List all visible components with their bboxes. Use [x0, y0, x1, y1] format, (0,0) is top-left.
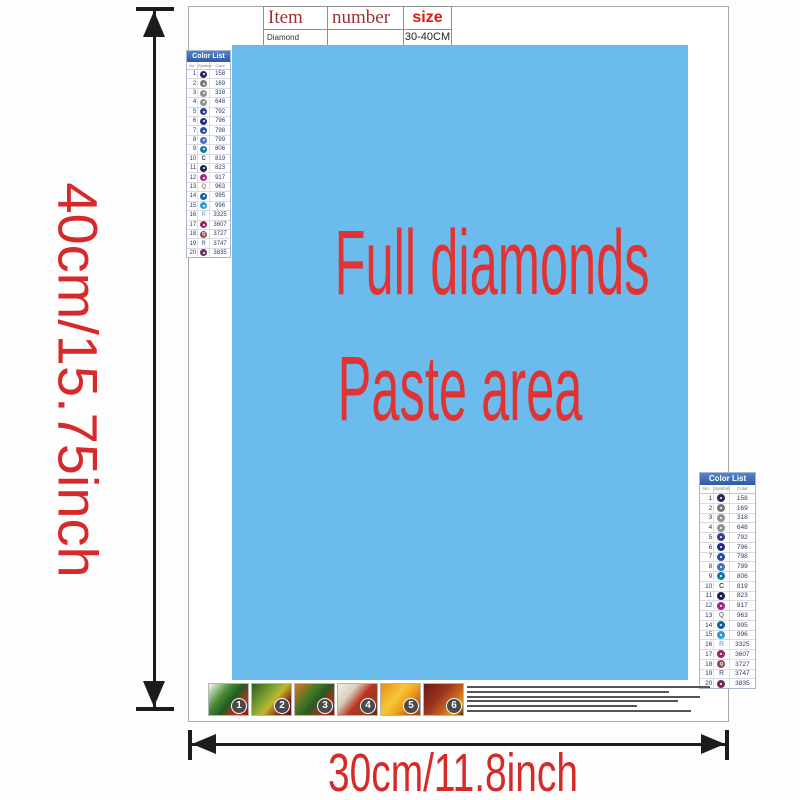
color-symbol-dot	[200, 99, 207, 106]
color-list-row: 14995	[700, 621, 755, 631]
color-list-row: 19R3747	[700, 670, 755, 680]
color-list-row: 12917	[187, 173, 230, 182]
color-symbol-speck	[203, 148, 205, 150]
color-symbol-cell	[198, 136, 210, 144]
color-symbol-dot	[200, 249, 207, 256]
color-symbol-speck	[203, 73, 205, 75]
color-list-row: 8799	[700, 562, 755, 572]
color-code: 963	[210, 183, 230, 191]
color-code: 917	[210, 173, 230, 181]
color-symbol-speck	[203, 177, 205, 179]
color-row-number: 18	[187, 230, 198, 238]
color-code: 996	[210, 202, 230, 210]
color-symbol-dot	[717, 533, 725, 541]
arrow-tick-right	[725, 730, 729, 760]
step-number-badge: 3	[317, 698, 333, 714]
color-symbol-cell	[714, 631, 729, 640]
color-symbol-speck	[720, 536, 722, 538]
color-symbol-dot	[717, 494, 725, 502]
column-color: Color	[210, 62, 230, 69]
step-image: 2	[251, 683, 292, 716]
color-row-number: 6	[700, 543, 714, 552]
color-symbol-dot	[200, 108, 207, 115]
color-symbol-letter: Q	[719, 612, 724, 619]
color-row-number: 7	[187, 126, 198, 134]
color-symbol-dot	[717, 650, 725, 658]
color-code: 823	[210, 164, 230, 172]
color-code: 3325	[730, 640, 755, 649]
color-symbol-speck	[203, 252, 205, 254]
color-symbol-dot	[717, 602, 725, 610]
color-list-row: 8799	[187, 136, 230, 145]
step-image: 6	[423, 683, 464, 716]
color-list-row: 16R3325	[187, 211, 230, 220]
color-list-left: Color ListNo.SymbolColor1158216933184648…	[186, 50, 231, 258]
color-list-row: 15996	[700, 631, 755, 641]
color-row-number: 14	[187, 192, 198, 200]
color-row-number: 4	[700, 523, 714, 532]
color-code: 792	[210, 108, 230, 116]
color-list-right: Color ListNo.SymbolColor1158216933184648…	[699, 472, 756, 689]
size-value: 30-40CM	[404, 30, 451, 45]
color-row-number: 20	[187, 249, 198, 257]
color-symbol-cell	[198, 126, 210, 134]
color-code: 3747	[730, 670, 755, 679]
color-code: 995	[210, 192, 230, 200]
column-color: Color	[730, 485, 755, 493]
color-code: 995	[730, 621, 755, 630]
color-symbol-speck	[720, 653, 722, 655]
color-row-number: 15	[700, 631, 714, 640]
color-code: 158	[730, 494, 755, 503]
color-symbol-dot	[717, 514, 725, 522]
color-symbol-cell	[198, 164, 210, 172]
color-symbol-speck	[203, 83, 205, 85]
color-list-row: 9806	[700, 572, 755, 582]
fine-print-line	[467, 686, 710, 688]
color-symbol-speck	[720, 507, 722, 509]
color-symbol-cell	[714, 679, 729, 688]
color-code: 169	[210, 79, 230, 87]
color-symbol-cell	[198, 89, 210, 97]
color-list-row: 2169	[700, 504, 755, 514]
color-symbol-dot	[200, 174, 207, 181]
color-symbol-cell: Q	[198, 230, 210, 238]
arrowhead-down-icon	[143, 681, 165, 707]
color-list-row: 11823	[700, 592, 755, 602]
color-row-number: 15	[187, 202, 198, 210]
color-symbol-speck	[720, 497, 722, 499]
color-list-row: 4648	[187, 98, 230, 107]
color-list-row: 18Q3727	[187, 230, 230, 239]
color-code: 3607	[730, 650, 755, 659]
color-symbol-letter: R	[202, 212, 206, 218]
color-row-number: 19	[700, 670, 714, 679]
column-symbol: Symbol	[198, 62, 210, 69]
step-number-badge: 5	[403, 698, 419, 714]
color-symbol-dot	[200, 221, 207, 228]
color-row-number: 1	[700, 494, 714, 503]
color-row-number: 13	[700, 611, 714, 620]
color-symbol-cell	[714, 514, 729, 523]
color-list-row: 7798	[700, 553, 755, 563]
step-number-badge: 6	[446, 698, 462, 714]
color-code: 3727	[730, 660, 755, 669]
step-image: 5	[380, 683, 421, 716]
color-list-row: 3318	[187, 89, 230, 98]
color-list-row: 10C819	[700, 582, 755, 592]
color-symbol-dot	[717, 631, 725, 639]
color-row-number: 10	[700, 582, 714, 591]
color-symbol-cell: R	[714, 640, 729, 649]
color-symbol-speck	[203, 130, 205, 132]
color-code: 823	[730, 592, 755, 601]
color-symbol-letter: R	[719, 670, 724, 677]
instruction-fine-print	[467, 686, 710, 715]
color-list-row: 19R3747	[187, 239, 230, 248]
color-symbol-speck	[203, 101, 205, 103]
color-list-row: 3318	[700, 514, 755, 524]
color-symbol-cell	[714, 572, 729, 581]
color-symbol-cell	[198, 145, 210, 153]
color-list-title: Color List	[700, 473, 755, 485]
color-symbol-dot	[717, 680, 725, 688]
color-code: 798	[730, 553, 755, 562]
color-list-row: 1158	[700, 494, 755, 504]
color-code: 3727	[210, 230, 230, 238]
color-symbol-cell	[714, 562, 729, 571]
color-symbol-speck	[720, 527, 722, 529]
color-code: 799	[210, 136, 230, 144]
arrow-shaft-vertical	[153, 11, 156, 707]
color-symbol-cell: C	[198, 155, 210, 163]
color-symbol-dot	[200, 90, 207, 97]
color-code: 3835	[730, 679, 755, 688]
color-list-row: 15996	[187, 202, 230, 211]
color-row-number: 11	[700, 592, 714, 601]
color-code: 318	[730, 514, 755, 523]
color-row-number: 17	[187, 221, 198, 229]
color-list-row: 11823	[187, 164, 230, 173]
color-symbol-cell	[714, 504, 729, 513]
color-row-number: 9	[187, 145, 198, 153]
color-list-row: 5792	[700, 533, 755, 543]
paste-area-subtitle: Paste area	[335, 343, 586, 435]
color-symbol-cell	[714, 601, 729, 610]
arrow-tick-bottom	[136, 707, 174, 711]
color-symbol-speck	[720, 517, 722, 519]
color-symbol-speck	[720, 605, 722, 607]
color-symbol-letter: Q	[202, 232, 206, 237]
color-symbol-speck	[720, 575, 722, 577]
product-image: Item number size Diamond painting 30-40C…	[0, 0, 800, 800]
color-row-number: 8	[187, 136, 198, 144]
color-code: 318	[210, 89, 230, 97]
fine-print-line	[467, 700, 678, 702]
column-no: No.	[700, 485, 714, 493]
color-symbol-dot	[200, 146, 207, 153]
color-list-row: 173607	[187, 221, 230, 230]
step-number-badge: 2	[274, 698, 290, 714]
color-symbol-cell	[198, 192, 210, 200]
color-symbol-cell	[198, 202, 210, 210]
step-number-badge: 4	[360, 698, 376, 714]
color-code: 3747	[210, 239, 230, 247]
color-symbol-cell	[714, 621, 729, 630]
item-value: Diamond painting	[264, 30, 328, 45]
color-symbol-cell	[714, 543, 729, 552]
color-symbol-cell	[198, 98, 210, 106]
color-symbol-dot: Q	[717, 660, 725, 668]
color-row-number: 11	[187, 164, 198, 172]
color-row-number: 14	[700, 621, 714, 630]
color-code: 799	[730, 562, 755, 571]
color-list-row: 13Q963	[700, 611, 755, 621]
color-list-row: 5792	[187, 108, 230, 117]
column-symbol: Symbol	[714, 485, 729, 493]
color-code: 996	[730, 631, 755, 640]
color-symbol-cell	[198, 221, 210, 229]
number-value	[328, 30, 404, 45]
item-table-value-row: Diamond painting 30-40CM	[264, 30, 451, 45]
color-list-row: 6796	[700, 543, 755, 553]
color-symbol-speck	[720, 634, 722, 636]
color-symbol-dot	[200, 165, 207, 172]
color-symbol-dot	[200, 118, 207, 125]
arrowhead-right-icon	[701, 734, 725, 754]
paste-area-title: Full diamonds	[335, 217, 586, 309]
item-table-header-row: Item number size	[264, 7, 451, 30]
color-code: 3607	[210, 221, 230, 229]
width-dimension-label: 30cm/11.8inch	[328, 742, 578, 800]
color-row-number: 5	[700, 533, 714, 542]
color-symbol-letter: R	[719, 641, 724, 648]
color-symbol-cell	[198, 117, 210, 125]
color-list-row: 18Q3727	[700, 660, 755, 670]
color-list-row: 7798	[187, 126, 230, 135]
color-row-number: 7	[700, 553, 714, 562]
color-symbol-cell: Q	[198, 183, 210, 191]
color-symbol-letter: R	[202, 241, 206, 247]
color-code: 798	[210, 126, 230, 134]
color-symbol-dot	[717, 524, 725, 532]
color-row-number: 5	[187, 108, 198, 116]
color-symbol-speck	[203, 195, 205, 197]
color-symbol-letter: Q	[720, 662, 724, 667]
color-row-number: 8	[700, 562, 714, 571]
color-symbol-cell	[714, 650, 729, 659]
color-row-number: 16	[700, 640, 714, 649]
color-row-number: 16	[187, 211, 198, 219]
color-symbol-speck	[720, 595, 722, 597]
color-code: 648	[730, 523, 755, 532]
color-list-row: 9806	[187, 145, 230, 154]
color-list-row: 14995	[187, 192, 230, 201]
color-symbol-speck	[720, 624, 722, 626]
color-row-number: 9	[700, 572, 714, 581]
color-symbol-cell	[198, 70, 210, 78]
color-code: 917	[730, 601, 755, 610]
color-list-row: 1158	[187, 70, 230, 79]
color-list-title: Color List	[187, 51, 230, 62]
color-symbol-cell: R	[198, 239, 210, 247]
color-code: 3835	[210, 249, 230, 257]
color-symbol-cell	[198, 173, 210, 181]
color-symbol-dot	[717, 572, 725, 580]
color-list-row: 203835	[187, 249, 230, 257]
color-code: 806	[730, 572, 755, 581]
color-row-number: 12	[187, 173, 198, 181]
color-list-column-headers: No.SymbolColor	[187, 62, 230, 70]
color-symbol-cell	[198, 249, 210, 257]
column-no: No.	[187, 62, 198, 69]
color-code: 648	[210, 98, 230, 106]
color-symbol-speck	[720, 683, 722, 685]
color-code: 796	[730, 543, 755, 552]
color-row-number: 3	[187, 89, 198, 97]
color-code: 3325	[210, 211, 230, 219]
color-symbol-cell	[714, 592, 729, 601]
color-list-row: 6796	[187, 117, 230, 126]
step-image: 1	[208, 683, 249, 716]
color-row-number: 6	[187, 117, 198, 125]
color-symbol-speck	[720, 566, 722, 568]
color-symbol-cell: R	[198, 211, 210, 219]
color-symbol-speck	[203, 224, 205, 226]
color-row-number: 2	[187, 79, 198, 87]
fine-print-line	[467, 696, 700, 698]
instruction-steps-strip: 123456	[208, 683, 464, 716]
color-list-row: 12917	[700, 601, 755, 611]
color-symbol-speck	[203, 120, 205, 122]
color-row-number: 17	[700, 650, 714, 659]
step-image: 4	[337, 683, 378, 716]
color-row-number: 4	[187, 98, 198, 106]
color-symbol-dot: Q	[200, 231, 207, 238]
color-symbol-dot	[717, 543, 725, 551]
color-symbol-letter: C	[202, 156, 206, 162]
color-code: 963	[730, 611, 755, 620]
color-row-number: 12	[700, 601, 714, 610]
height-dimension-label: 40cm/15.75inch	[46, 182, 111, 577]
color-symbol-dot	[717, 621, 725, 629]
color-symbol-dot	[200, 137, 207, 144]
color-symbol-dot	[717, 504, 725, 512]
color-code: 819	[210, 155, 230, 163]
number-header: number	[328, 7, 404, 29]
color-symbol-dot	[717, 592, 725, 600]
color-symbol-cell: C	[714, 582, 729, 591]
size-header: size	[404, 7, 451, 29]
color-list-row: 4648	[700, 523, 755, 533]
color-symbol-cell	[198, 108, 210, 116]
color-symbol-speck	[203, 205, 205, 207]
color-symbol-speck	[203, 92, 205, 94]
color-symbol-speck	[203, 167, 205, 169]
color-code: 158	[210, 70, 230, 78]
color-code: 792	[730, 533, 755, 542]
color-symbol-dot	[200, 202, 207, 209]
color-symbol-letter: Q	[201, 184, 206, 190]
color-symbol-dot	[717, 563, 725, 571]
color-list-row: 173607	[700, 650, 755, 660]
color-list-row: 2169	[187, 79, 230, 88]
color-row-number: 10	[187, 155, 198, 163]
color-list-row: 10C819	[187, 155, 230, 164]
color-symbol-cell: Q	[714, 660, 729, 669]
color-symbol-speck	[720, 556, 722, 558]
color-row-number: 1	[187, 70, 198, 78]
fine-print-line	[467, 691, 669, 693]
color-row-number: 3	[700, 514, 714, 523]
color-symbol-cell: Q	[714, 611, 729, 620]
color-symbol-speck	[720, 546, 722, 548]
paste-area: Full diamonds Paste area	[232, 45, 688, 680]
color-code: 169	[730, 504, 755, 513]
item-header: Item	[264, 7, 328, 29]
item-info-table: Item number size Diamond painting 30-40C…	[263, 6, 452, 46]
color-symbol-cell	[714, 523, 729, 532]
color-code: 796	[210, 117, 230, 125]
color-symbol-cell: R	[714, 670, 729, 679]
color-list-row: 13Q963	[187, 183, 230, 192]
color-symbol-cell	[198, 79, 210, 87]
color-row-number: 2	[700, 504, 714, 513]
color-symbol-dot	[200, 127, 207, 134]
color-code: 806	[210, 145, 230, 153]
fine-print-line	[467, 705, 637, 707]
color-symbol-dot	[717, 553, 725, 561]
color-symbol-cell	[714, 494, 729, 503]
color-symbol-dot	[200, 193, 207, 200]
color-symbol-cell	[714, 533, 729, 542]
color-symbol-cell	[714, 553, 729, 562]
color-list-row: 16R3325	[700, 640, 755, 650]
color-row-number: 18	[700, 660, 714, 669]
color-symbol-dot	[200, 80, 207, 87]
step-image: 3	[294, 683, 335, 716]
color-list-column-headers: No.SymbolColor	[700, 485, 755, 494]
color-symbol-dot	[200, 71, 207, 78]
color-symbol-speck	[203, 111, 205, 113]
color-row-number: 19	[187, 239, 198, 247]
color-symbol-letter: C	[719, 583, 724, 590]
color-code: 819	[730, 582, 755, 591]
fine-print-line	[467, 710, 691, 712]
color-symbol-speck	[203, 139, 205, 141]
color-row-number: 13	[187, 183, 198, 191]
step-number-badge: 1	[231, 698, 247, 714]
